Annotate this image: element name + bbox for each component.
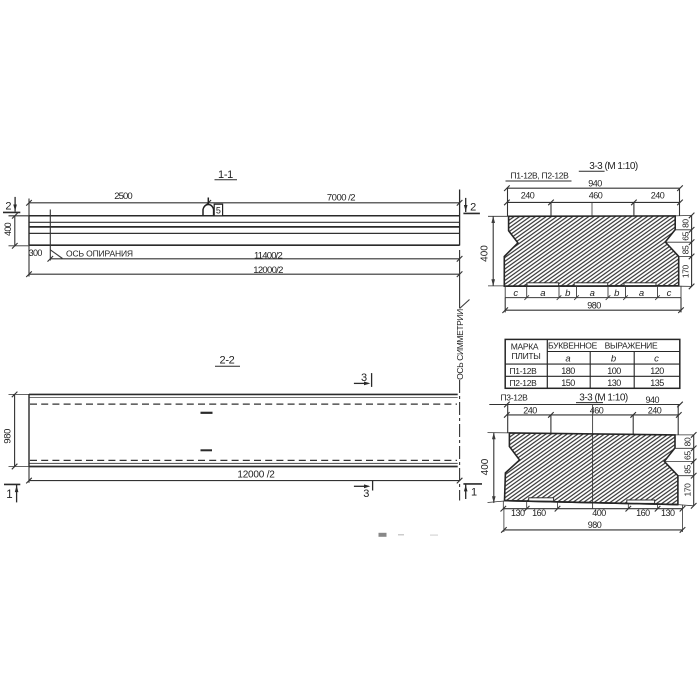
svg-text:980: 980 bbox=[2, 429, 13, 444]
svg-text:65: 65 bbox=[681, 231, 691, 240]
svg-text:ОСЬ СИММЕТРИИ: ОСЬ СИММЕТРИИ bbox=[455, 309, 465, 380]
svg-text:3-3 (М 1:10): 3-3 (М 1:10) bbox=[589, 161, 638, 172]
svg-text:400: 400 bbox=[479, 245, 490, 262]
svg-text:240: 240 bbox=[648, 406, 662, 416]
svg-text:2-2: 2-2 bbox=[220, 355, 235, 367]
svg-text:1: 1 bbox=[471, 487, 477, 499]
svg-text:a: a bbox=[565, 354, 570, 365]
svg-text:П1-12В, П2-12В: П1-12В, П2-12В bbox=[510, 170, 569, 180]
svg-text:12000/2: 12000/2 bbox=[253, 265, 283, 276]
svg-text:12000 /2: 12000 /2 bbox=[237, 470, 275, 481]
svg-text:170: 170 bbox=[681, 264, 691, 278]
svg-text:1: 1 bbox=[6, 489, 12, 501]
svg-text:3: 3 bbox=[363, 488, 369, 500]
svg-text:2: 2 bbox=[470, 201, 476, 213]
svg-text:b: b bbox=[614, 288, 619, 299]
svg-text:a: a bbox=[540, 288, 545, 299]
svg-text:c: c bbox=[654, 354, 659, 365]
svg-text:85: 85 bbox=[683, 464, 693, 473]
svg-text:120: 120 bbox=[650, 366, 664, 376]
svg-text:170: 170 bbox=[683, 483, 693, 497]
svg-text:240: 240 bbox=[651, 191, 665, 201]
svg-text:b: b bbox=[565, 288, 570, 299]
svg-text:980: 980 bbox=[588, 520, 602, 530]
svg-text:980: 980 bbox=[587, 300, 601, 310]
svg-text:3-3 (М 1:10): 3-3 (М 1:10) bbox=[579, 393, 628, 404]
svg-text:180: 180 bbox=[561, 366, 575, 376]
svg-text:11400/2: 11400/2 bbox=[254, 250, 283, 261]
svg-text:c: c bbox=[513, 288, 518, 299]
svg-text:7000 /2: 7000 /2 bbox=[327, 193, 355, 204]
svg-text:1-1: 1-1 bbox=[218, 169, 233, 181]
svg-text:65: 65 bbox=[683, 451, 693, 460]
svg-text:БУКВЕННОЕ: БУКВЕННОЕ bbox=[548, 341, 598, 351]
svg-text:400: 400 bbox=[592, 508, 606, 518]
svg-text:130: 130 bbox=[607, 378, 621, 388]
svg-text:940: 940 bbox=[646, 395, 660, 405]
svg-text:460: 460 bbox=[589, 191, 603, 201]
svg-text:160: 160 bbox=[532, 508, 546, 518]
svg-text:150: 150 bbox=[561, 378, 575, 388]
svg-text:100: 100 bbox=[607, 366, 621, 376]
svg-text:300: 300 bbox=[29, 248, 43, 258]
svg-text:b: b bbox=[611, 354, 616, 365]
svg-text:400: 400 bbox=[3, 222, 13, 236]
svg-text:80: 80 bbox=[681, 219, 691, 228]
svg-text:П3-12В: П3-12В bbox=[501, 393, 529, 403]
svg-text:940: 940 bbox=[588, 179, 602, 189]
svg-text:5: 5 bbox=[216, 206, 221, 216]
svg-text:130: 130 bbox=[511, 508, 525, 518]
svg-text:135: 135 bbox=[650, 378, 664, 388]
svg-text:2500: 2500 bbox=[114, 191, 132, 202]
svg-text:160: 160 bbox=[636, 508, 650, 518]
svg-text:80: 80 bbox=[683, 437, 693, 446]
svg-text:МАРКА: МАРКА bbox=[511, 341, 539, 351]
svg-text:130: 130 bbox=[661, 508, 675, 518]
svg-text:400: 400 bbox=[480, 458, 491, 475]
svg-text:240: 240 bbox=[523, 406, 537, 416]
svg-text:3: 3 bbox=[361, 372, 367, 384]
svg-text:a: a bbox=[639, 288, 644, 299]
svg-text:c: c bbox=[667, 288, 672, 299]
svg-text:ПЛИТЫ: ПЛИТЫ bbox=[511, 351, 540, 361]
svg-text:460: 460 bbox=[590, 406, 604, 416]
svg-text:240: 240 bbox=[521, 191, 535, 201]
svg-text:2: 2 bbox=[5, 201, 11, 213]
svg-text:85: 85 bbox=[681, 245, 691, 254]
svg-text:ВЫРАЖЕНИЕ: ВЫРАЖЕНИЕ bbox=[605, 341, 658, 351]
svg-text:a: a bbox=[590, 288, 595, 299]
svg-text:П1-12В: П1-12В bbox=[510, 366, 538, 376]
svg-text:ОСЬ ОПИРАНИЯ: ОСЬ ОПИРАНИЯ bbox=[66, 249, 133, 259]
svg-text:П2-12В: П2-12В bbox=[510, 378, 538, 388]
